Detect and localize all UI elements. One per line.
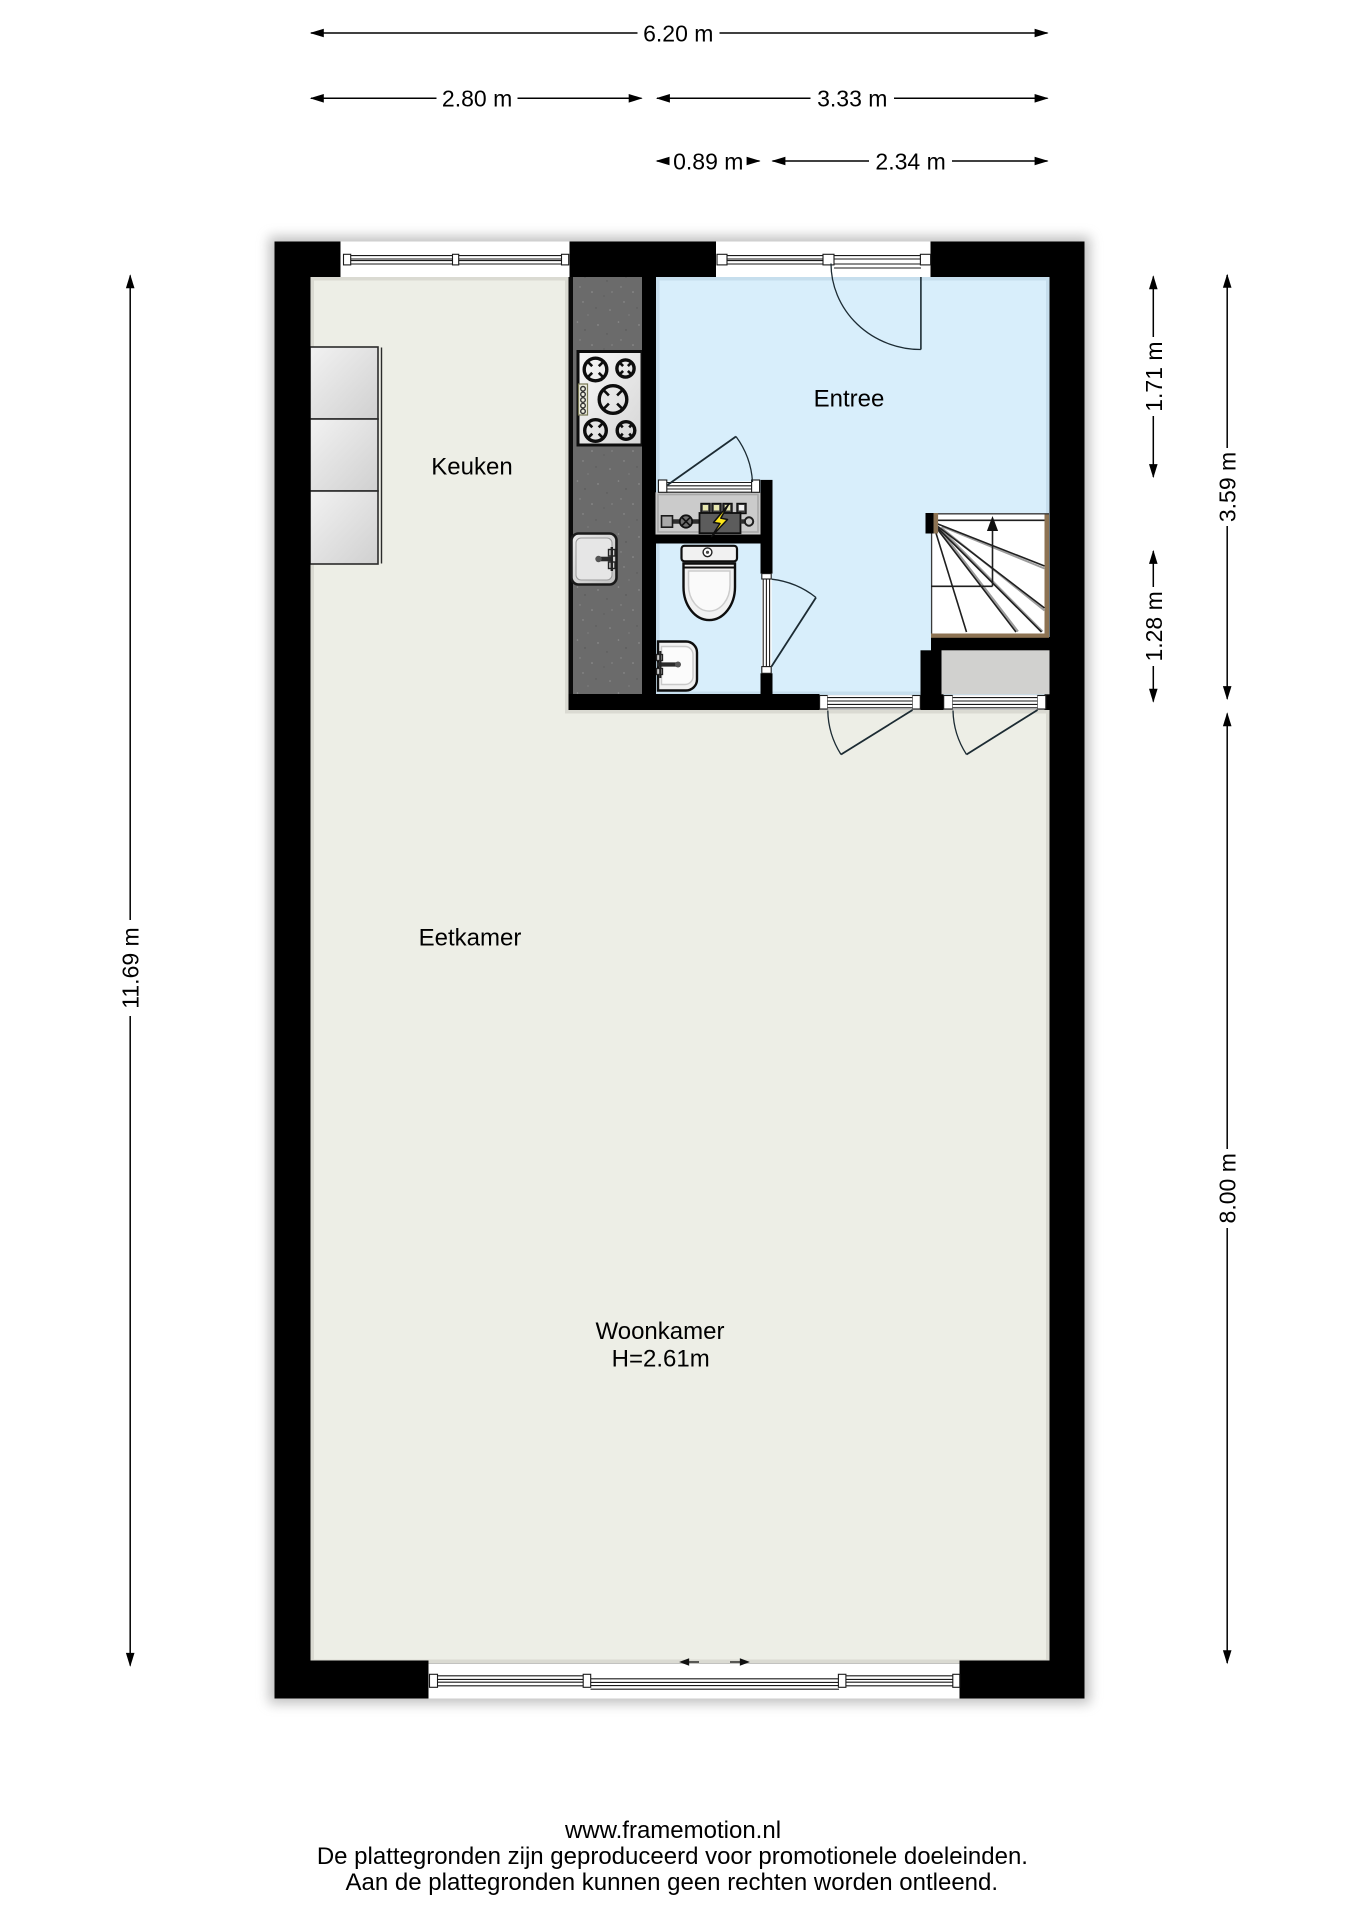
svg-text:0.89 m: 0.89 m <box>673 148 743 174</box>
svg-text:3.59 m: 3.59 m <box>1215 452 1241 522</box>
svg-text:1.28 m: 1.28 m <box>1141 591 1167 661</box>
svg-text:Keuken: Keuken <box>431 454 512 481</box>
svg-text:www.framemotion.nl: www.framemotion.nl <box>564 1817 781 1844</box>
svg-text:Aan de plattegronden kunnen ge: Aan de plattegronden kunnen geen rechten… <box>346 1869 999 1896</box>
svg-text:De plattegronden zijn geproduc: De plattegronden zijn geproduceerd voor … <box>317 1843 1028 1870</box>
svg-text:H=2.61m: H=2.61m <box>612 1346 710 1373</box>
svg-text:1.71 m: 1.71 m <box>1141 341 1167 411</box>
svg-text:Woonkamer: Woonkamer <box>596 1318 725 1345</box>
svg-text:2.80 m: 2.80 m <box>442 86 512 112</box>
svg-text:6.20 m: 6.20 m <box>643 20 713 46</box>
svg-text:11.69 m: 11.69 m <box>118 927 144 1008</box>
svg-text:3.33 m: 3.33 m <box>817 86 887 112</box>
svg-text:Entree: Entree <box>814 386 885 413</box>
svg-text:Eetkamer: Eetkamer <box>419 925 522 952</box>
svg-text:8.00 m: 8.00 m <box>1215 1153 1241 1223</box>
svg-text:2.34 m: 2.34 m <box>875 148 945 174</box>
